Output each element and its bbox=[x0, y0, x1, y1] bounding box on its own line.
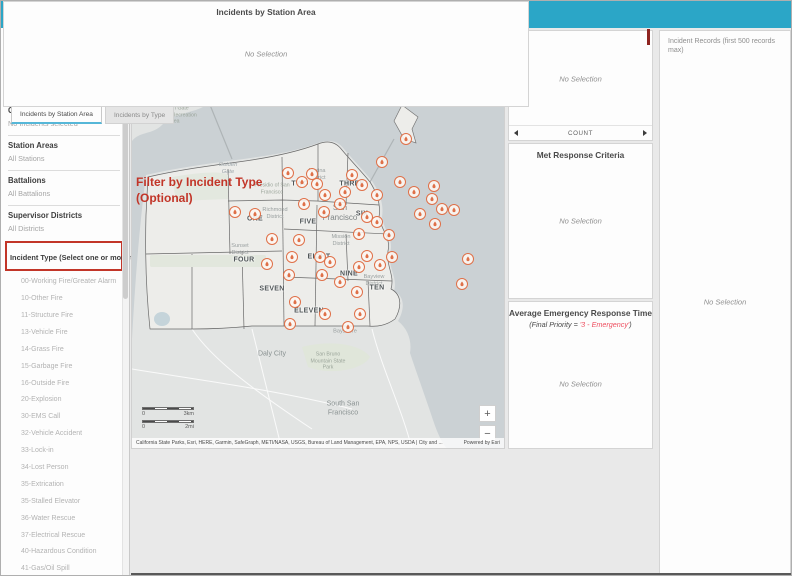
incident-marker[interactable] bbox=[426, 193, 438, 205]
incident-marker[interactable] bbox=[354, 308, 366, 320]
scale-mi-max: 2mi bbox=[185, 424, 194, 430]
incident-marker[interactable] bbox=[284, 318, 296, 330]
attribution-text: California State Parks, Esri, HERE, Garm… bbox=[136, 440, 443, 446]
bottom-chart-panel: Incidents by Station Area No Selection I… bbox=[1, 1, 529, 124]
incident-type-option[interactable]: 35-Extrication bbox=[8, 476, 120, 493]
dashboard-window: San Francisco Fire Incident Dashboard Fi… bbox=[0, 0, 792, 576]
incident-marker[interactable] bbox=[408, 186, 420, 198]
incident-marker[interactable] bbox=[371, 216, 383, 228]
incident-marker[interactable] bbox=[436, 203, 448, 215]
serial-chart-count-label: COUNT bbox=[568, 130, 593, 137]
incident-type-option[interactable]: 32-Vehicle Accident bbox=[8, 425, 120, 442]
incident-marker[interactable] bbox=[266, 233, 278, 245]
red-annotation-bar bbox=[647, 29, 650, 45]
incident-marker[interactable] bbox=[400, 133, 412, 145]
sidebar-filter-supervisor-districts[interactable]: Supervisor DistrictsAll Districts bbox=[8, 205, 120, 235]
next-category-icon[interactable] bbox=[643, 130, 647, 136]
annotation-line1: Filter by Incident Type bbox=[136, 175, 286, 191]
incident-marker[interactable] bbox=[334, 276, 346, 288]
scale-mi-zero: 0 bbox=[142, 424, 145, 430]
incident-type-option[interactable]: 15-Garbage Fire bbox=[8, 358, 120, 375]
incident-marker[interactable] bbox=[289, 296, 301, 308]
avg-response-title: Average Emergency Response Time bbox=[509, 302, 652, 318]
incident-type-option[interactable]: 37-Electrical Rescue bbox=[8, 527, 120, 544]
incident-marker[interactable] bbox=[353, 261, 365, 273]
scale-bar-mi bbox=[142, 420, 194, 423]
incident-marker[interactable] bbox=[353, 228, 365, 240]
filter-value: All Districts bbox=[8, 224, 120, 233]
incident-marker[interactable] bbox=[334, 198, 346, 210]
incident-marker[interactable] bbox=[428, 180, 440, 192]
incident-type-filter-header[interactable]: Incident Type (Select one or more to ... bbox=[5, 241, 123, 271]
filter-value: All Battalions bbox=[8, 189, 120, 198]
incident-records-panel: Incident Records (first 500 records max)… bbox=[659, 30, 791, 574]
incident-type-option[interactable]: 36-Water Rescue bbox=[8, 510, 120, 527]
incident-marker[interactable] bbox=[386, 251, 398, 263]
incident-type-option[interactable]: 00-Working Fire/Greater Alarm bbox=[8, 273, 120, 290]
tab-incidents-by-type[interactable]: Incidents by Type bbox=[105, 107, 174, 124]
serial-chart-panel: No Selection COUNT bbox=[508, 30, 653, 141]
bottom-tabs: Incidents by Station Area Incidents by T… bbox=[3, 107, 174, 124]
scale-bar: 0 3km 0 2mi bbox=[142, 407, 194, 433]
incident-type-option[interactable]: 16-Outside Fire bbox=[8, 375, 120, 392]
incident-marker[interactable] bbox=[448, 204, 460, 216]
sidebar-filter-station-areas[interactable]: Station AreasAll Stations bbox=[8, 135, 120, 165]
incident-type-option[interactable]: 14-Grass Fire bbox=[8, 341, 120, 358]
incident-type-option[interactable]: 35-Stalled Elevator bbox=[8, 493, 120, 510]
incident-marker[interactable] bbox=[429, 218, 441, 230]
incident-marker[interactable] bbox=[383, 229, 395, 241]
powered-by-esri: Powered by Esri bbox=[464, 440, 500, 446]
met-response-no-selection: No Selection bbox=[509, 217, 652, 226]
incident-records-title: Incident Records (first 500 records max) bbox=[660, 31, 790, 55]
met-response-panel: Met Response Criteria No Selection bbox=[508, 143, 653, 299]
incident-marker[interactable] bbox=[339, 186, 351, 198]
priority-emergency-text: '3 - Emergency' bbox=[580, 320, 629, 329]
incident-marker[interactable] bbox=[324, 256, 336, 268]
incident-marker[interactable] bbox=[346, 169, 358, 181]
incident-type-option[interactable]: 33-Lock-in bbox=[8, 442, 120, 459]
incident-type-option[interactable]: 40-Hazardous Condition bbox=[8, 543, 120, 560]
incident-marker[interactable] bbox=[342, 321, 354, 333]
incident-marker[interactable] bbox=[394, 176, 406, 188]
scale-km-zero: 0 bbox=[142, 411, 145, 417]
filter-value: All Stations bbox=[8, 154, 120, 163]
incident-marker[interactable] bbox=[319, 189, 331, 201]
incident-type-option[interactable]: 34-Lost Person bbox=[8, 459, 120, 476]
incident-marker[interactable] bbox=[351, 286, 363, 298]
serial-chart-no-selection: No Selection bbox=[509, 74, 652, 83]
scale-bar-km bbox=[142, 407, 194, 410]
zoom-in-button[interactable]: + bbox=[479, 405, 496, 422]
avg-response-no-selection: No Selection bbox=[509, 379, 652, 388]
avg-response-subtitle: (Final Priority = '3 - Emergency') bbox=[509, 320, 652, 329]
bottom-chart-no-selection: No Selection bbox=[4, 50, 528, 59]
tab-incidents-by-station-area[interactable]: Incidents by Station Area bbox=[11, 107, 102, 124]
incident-type-option[interactable]: 41-Gas/Oil Spill bbox=[8, 560, 120, 576]
incident-marker[interactable] bbox=[298, 198, 310, 210]
scale-km-max: 3km bbox=[184, 411, 194, 417]
avg-response-panel: Average Emergency Response Time (Final P… bbox=[508, 301, 653, 449]
incident-marker[interactable] bbox=[261, 258, 273, 270]
incident-type-option[interactable]: 13-Vehicle Fire bbox=[8, 324, 120, 341]
incident-marker[interactable] bbox=[456, 278, 468, 290]
incident-marker[interactable] bbox=[296, 176, 308, 188]
incident-marker[interactable] bbox=[319, 308, 331, 320]
incident-type-option[interactable]: 10-Other Fire bbox=[8, 290, 120, 307]
annotation-line2: (Optional) bbox=[136, 191, 286, 207]
met-response-title: Met Response Criteria bbox=[509, 144, 652, 160]
incident-marker[interactable] bbox=[374, 259, 386, 271]
incident-marker[interactable] bbox=[229, 206, 241, 218]
filter-label: Supervisor Districts bbox=[8, 211, 120, 220]
incident-marker[interactable] bbox=[376, 156, 388, 168]
serial-chart-footer: COUNT bbox=[509, 125, 652, 140]
incident-type-option[interactable]: 30-EMS Call bbox=[8, 408, 120, 425]
filter-label: Station Areas bbox=[8, 141, 120, 150]
tutorial-annotation: Filter by Incident Type (Optional) bbox=[136, 175, 286, 206]
incident-type-list: 00-Working Fire/Greater Alarm10-Other Fi… bbox=[8, 273, 120, 576]
incident-type-option[interactable]: 11-Structure Fire bbox=[8, 307, 120, 324]
incident-marker[interactable] bbox=[306, 168, 318, 180]
filter-label: Battalions bbox=[8, 176, 120, 185]
incident-marker[interactable] bbox=[318, 206, 330, 218]
prev-category-icon[interactable] bbox=[514, 130, 518, 136]
incident-marker[interactable] bbox=[361, 250, 373, 262]
incident-marker[interactable] bbox=[462, 253, 474, 265]
incident-marker[interactable] bbox=[316, 269, 328, 281]
incident-marker[interactable] bbox=[283, 269, 295, 281]
incident-marker[interactable] bbox=[249, 208, 261, 220]
station-area-chart: Incidents by Station Area No Selection bbox=[3, 1, 529, 107]
incident-marker[interactable] bbox=[286, 251, 298, 263]
incident-marker[interactable] bbox=[414, 208, 426, 220]
incident-marker[interactable] bbox=[356, 179, 368, 191]
sidebar-filter-battalions[interactable]: BattalionsAll Battalions bbox=[8, 170, 120, 200]
incident-marker[interactable] bbox=[371, 189, 383, 201]
incident-marker[interactable] bbox=[293, 234, 305, 246]
map-attribution: California State Parks, Esri, HERE, Garm… bbox=[132, 438, 504, 448]
incident-records-no-selection: No Selection bbox=[660, 298, 790, 307]
incident-type-option[interactable]: 20-Explosion bbox=[8, 391, 120, 408]
bottom-chart-title: Incidents by Station Area bbox=[4, 2, 528, 17]
